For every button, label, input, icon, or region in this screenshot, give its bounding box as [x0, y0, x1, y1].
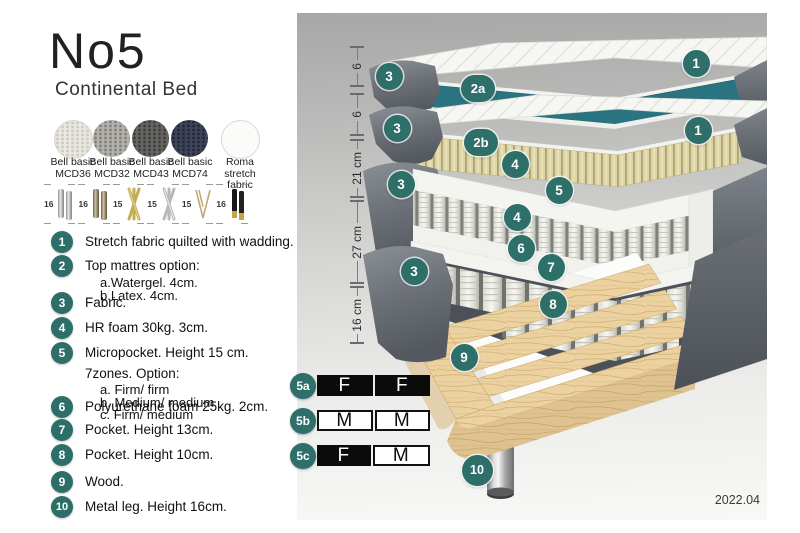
- ruler-tick: [350, 134, 364, 136]
- ruler-segment: 6: [342, 93, 372, 136]
- callout-5: 5: [546, 177, 573, 204]
- ruler-tick: [350, 282, 364, 284]
- ruler-label: 16 cm: [350, 296, 364, 335]
- firmness-cell: F: [375, 375, 431, 396]
- legend-item-10: 10 Metal leg. Height 16cm.: [51, 496, 297, 518]
- ruler-tick: [350, 85, 364, 87]
- firmness-cell: F: [317, 445, 371, 466]
- firmness-row-5a: F F: [317, 375, 430, 396]
- ruler-label: 27 cm: [350, 223, 364, 262]
- callout-4-bottom: 4: [504, 204, 531, 231]
- firmness-row-5c: F M: [317, 445, 430, 466]
- callout-8: 8: [540, 291, 567, 318]
- legend-item-6: 6 Polyurethane foam 25kg. 2cm.: [51, 396, 297, 418]
- legend-item-3: 3 Fabric.: [51, 292, 297, 314]
- leg-icon-cylinder-silver: [55, 187, 75, 221]
- legend-number: 6: [51, 396, 73, 418]
- legend-number: 7: [51, 419, 73, 441]
- callout-3-b: 3: [384, 115, 411, 142]
- callout-3-d: 3: [401, 258, 428, 285]
- legend-number: 1: [51, 231, 73, 253]
- callout-4-top: 4: [502, 151, 529, 178]
- fabric-swatch-mcd36: [54, 120, 93, 159]
- leg-icon-cylinder-bronze: [90, 187, 110, 221]
- callout-3-c: 3: [388, 171, 415, 198]
- ruler-label: 6: [350, 60, 364, 73]
- version-date: 2022.04: [640, 493, 760, 507]
- callout-1-top: 1: [683, 50, 710, 77]
- callout-3-a: 3: [376, 63, 403, 90]
- legend-item-1: 1 Stretch fabric quilted with wadding.: [51, 231, 297, 253]
- page-subtitle: Continental Bed: [55, 79, 198, 101]
- legend-item-7: 7 Pocket. Height 13cm.: [51, 419, 297, 441]
- callout-2a: 2a: [461, 75, 495, 102]
- leg-icon-hairpin: [193, 187, 213, 221]
- fabric-swatch-roma: [221, 120, 260, 159]
- leg-options-row: 16 16 15 15 15: [44, 184, 246, 224]
- callout-6: 6: [508, 235, 535, 262]
- legend-item-4: 4 HR foam 30kg. 3cm.: [51, 317, 297, 339]
- legend-number: 5: [51, 342, 73, 364]
- ruler-segment: 16 cm: [342, 286, 372, 344]
- leg-option-cylinder-black-gold: 16: [216, 184, 247, 224]
- fabric-swatch-mcd32: [93, 120, 130, 157]
- callout-10: 10: [462, 455, 493, 486]
- ruler-tick: [350, 342, 364, 344]
- legend-number: 2: [51, 255, 73, 277]
- legend-number: 9: [51, 471, 73, 493]
- firmness-row-5b: M M: [317, 410, 430, 431]
- page-title: No5: [49, 22, 147, 80]
- ruler-segment: 27 cm: [342, 200, 372, 284]
- legend-item-9: 9 Wood.: [51, 471, 297, 493]
- fabric-swatch-mcd43: [132, 120, 169, 157]
- firmness-cell: F: [317, 375, 373, 396]
- fabric-swatch-mcd74: [171, 120, 208, 157]
- callout-2b: 2b: [464, 129, 498, 156]
- callout-7: 7: [538, 254, 565, 281]
- leg-icon-cross-gold: [124, 187, 144, 221]
- leg-option-cross-gold: 15: [113, 184, 144, 224]
- legend-number: 10: [51, 496, 73, 518]
- legend-number: 4: [51, 317, 73, 339]
- leg-option-cross-silver: 15: [147, 184, 178, 224]
- leg-option-cylinder-silver: 16: [44, 184, 75, 224]
- legend-item-8: 8 Pocket. Height 10cm.: [51, 444, 297, 466]
- callout-9: 9: [451, 344, 478, 371]
- ruler-segment: 6: [342, 46, 372, 87]
- leg-icon-cross-silver: [159, 187, 179, 221]
- callout-1-mid: 1: [685, 117, 712, 144]
- fabric-label: Bell basicMCD74: [164, 157, 216, 180]
- ruler-segment: 21 cm: [342, 139, 372, 198]
- ruler-label: 6: [350, 108, 364, 121]
- firmness-cell: M: [317, 410, 373, 431]
- leg-option-hairpin: 15: [182, 184, 213, 224]
- leg-icon-cylinder-black-gold: [228, 187, 248, 221]
- ruler-label: 21 cm: [350, 149, 364, 188]
- leg-option-cylinder-bronze: 16: [78, 184, 109, 224]
- legend-number: 8: [51, 444, 73, 466]
- firmness-cell: M: [373, 445, 431, 466]
- legend-number: 3: [51, 292, 73, 314]
- ruler-tick: [350, 196, 364, 198]
- firmness-cell: M: [375, 410, 431, 431]
